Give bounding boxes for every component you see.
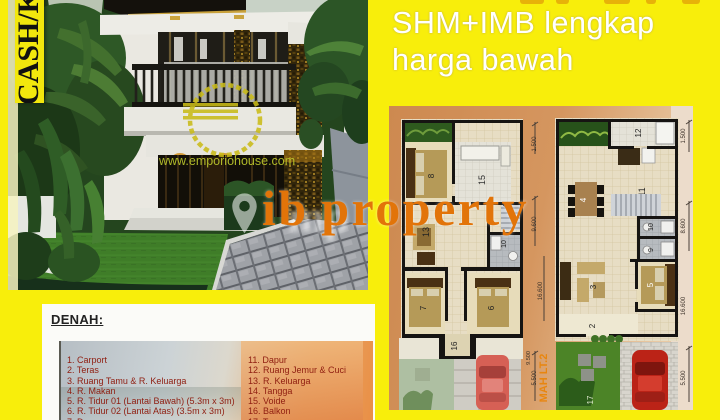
svg-text:17: 17 bbox=[586, 395, 595, 404]
svg-text:1.500: 1.500 bbox=[681, 128, 687, 144]
svg-text:5: 5 bbox=[646, 282, 655, 287]
svg-text:16.600: 16.600 bbox=[681, 296, 687, 315]
svg-text:2: 2 bbox=[588, 323, 597, 328]
svg-text:6: 6 bbox=[487, 305, 496, 310]
svg-text:8.600: 8.600 bbox=[681, 218, 687, 234]
svg-text:9.500: 9.500 bbox=[526, 351, 532, 365]
svg-text:7: 7 bbox=[419, 305, 428, 310]
svg-text:16: 16 bbox=[450, 341, 459, 350]
svg-text:9: 9 bbox=[648, 248, 655, 252]
svg-text:4: 4 bbox=[579, 197, 588, 202]
svg-text:16.600: 16.600 bbox=[538, 281, 544, 300]
svg-text:8: 8 bbox=[427, 173, 436, 178]
svg-text:5.500: 5.500 bbox=[681, 370, 687, 386]
svg-text:www.emporiohouse.com: www.emporiohouse.com bbox=[158, 154, 295, 168]
svg-text:10: 10 bbox=[501, 240, 508, 248]
svg-text:3: 3 bbox=[589, 284, 598, 289]
svg-text:12: 12 bbox=[634, 128, 643, 137]
svg-text:10: 10 bbox=[648, 223, 655, 231]
svg-text:MAH LT.2: MAH LT.2 bbox=[538, 354, 550, 403]
